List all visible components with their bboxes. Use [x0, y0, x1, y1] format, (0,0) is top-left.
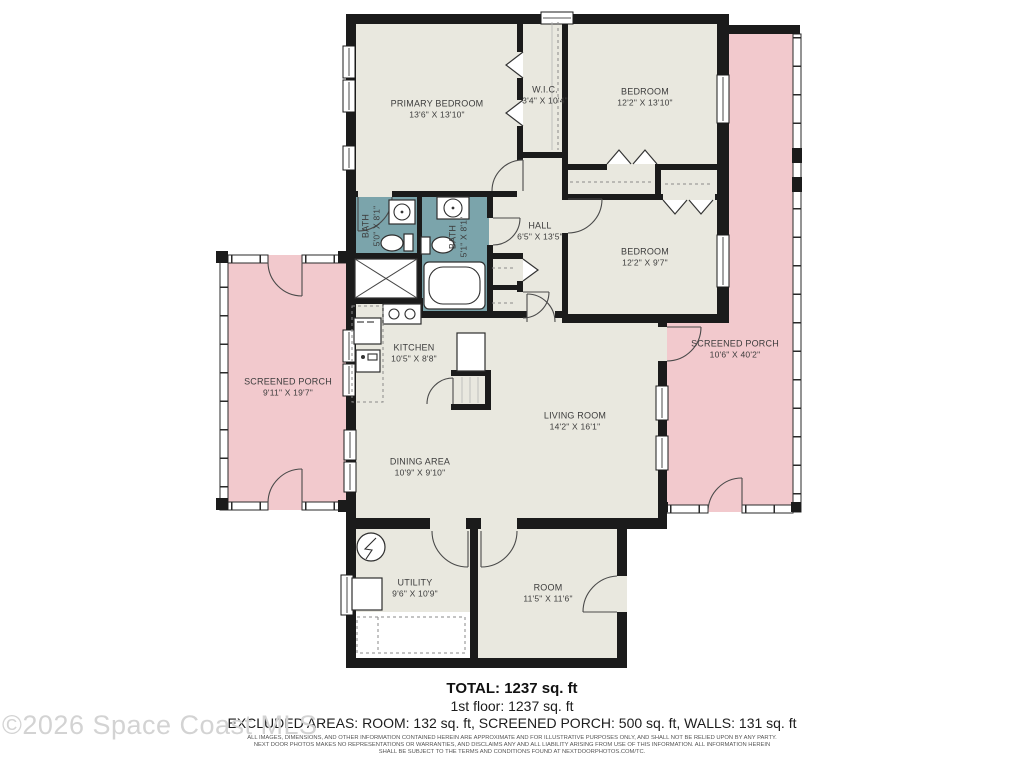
- room-label-room: ROOM11'5" X 11'6": [523, 583, 572, 604]
- room-label-bedroom-top: BEDROOM12'2" X 13'10": [617, 87, 673, 108]
- water-heater-icon: [352, 578, 382, 610]
- bathtub-icon: [424, 262, 485, 309]
- sink-icon: [389, 200, 415, 224]
- electrical-panel-icon: [357, 533, 385, 561]
- room-label-bath-left: BATH5'0" X 8'1": [361, 206, 382, 247]
- room-label-living-room: LIVING ROOM14'2" X 16'1": [544, 411, 606, 432]
- room-label-kitchen: KITCHEN10'5" X 8'8": [391, 343, 437, 364]
- floor-plan-page: PRIMARY BEDROOM13'6" X 13'10" W.I.C.3'4"…: [0, 0, 1024, 768]
- kitchen-sink-icon: [356, 350, 380, 372]
- toilet-icon: [381, 234, 413, 251]
- fridge-icon: [354, 318, 381, 344]
- floor-plan-drawing: [0, 0, 1024, 768]
- shower-icon: [355, 259, 417, 298]
- room-label-wic: W.I.C.3'4" X 10'4": [522, 85, 568, 106]
- room-label-dining-area: DINING AREA10'9" X 9'10": [390, 457, 450, 478]
- room-label-hall: HALL6'5" X 13'5": [517, 221, 563, 242]
- room-label-screened-porch-right: SCREENED PORCH10'6" X 40'2": [691, 339, 779, 360]
- total-area-text: TOTAL: 1237 sq. ft: [0, 680, 1024, 697]
- room-label-bath-right: BATH5'1" X 8'1": [448, 217, 469, 258]
- room-label-bedroom-middle: BEDROOM12'2" X 9'7": [621, 247, 669, 268]
- room-label-primary-bedroom: PRIMARY BEDROOM13'6" X 13'10": [391, 99, 484, 120]
- mls-watermark: ©2026 Space Coast MLS: [2, 710, 318, 741]
- room-label-screened-porch-left: SCREENED PORCH9'11" X 19'7": [244, 377, 332, 398]
- stove-icon: [383, 304, 421, 324]
- room-label-utility: UTILITY9'6" X 10'9": [392, 578, 438, 599]
